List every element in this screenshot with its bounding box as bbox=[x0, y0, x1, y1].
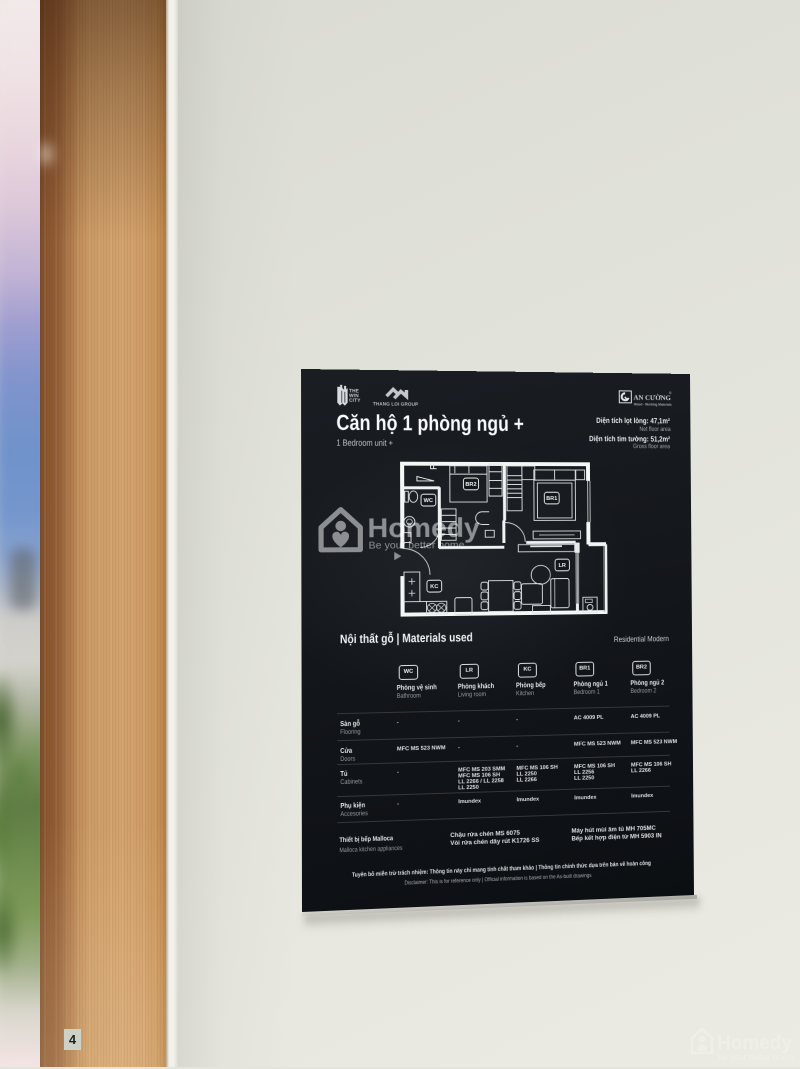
svg-text:BR1: BR1 bbox=[546, 496, 557, 502]
svg-text:Homedy: Homedy bbox=[717, 1033, 792, 1054]
svg-text:be your better home: be your better home bbox=[718, 1052, 794, 1062]
svg-text:AN CƯỜNG: AN CƯỜNG bbox=[633, 392, 671, 402]
svg-text:LR: LR bbox=[559, 563, 566, 569]
svg-text:THANG LOI GROUP: THANG LOI GROUP bbox=[373, 401, 418, 407]
svg-text:®: ® bbox=[669, 391, 672, 395]
svg-text:Wood - Working Materials: Wood - Working Materials bbox=[634, 403, 672, 407]
svg-text:BR2: BR2 bbox=[465, 482, 476, 488]
svg-text:KC: KC bbox=[430, 584, 438, 590]
svg-text:Be your better home: Be your better home bbox=[369, 540, 465, 551]
svg-text:CITY: CITY bbox=[349, 398, 361, 404]
